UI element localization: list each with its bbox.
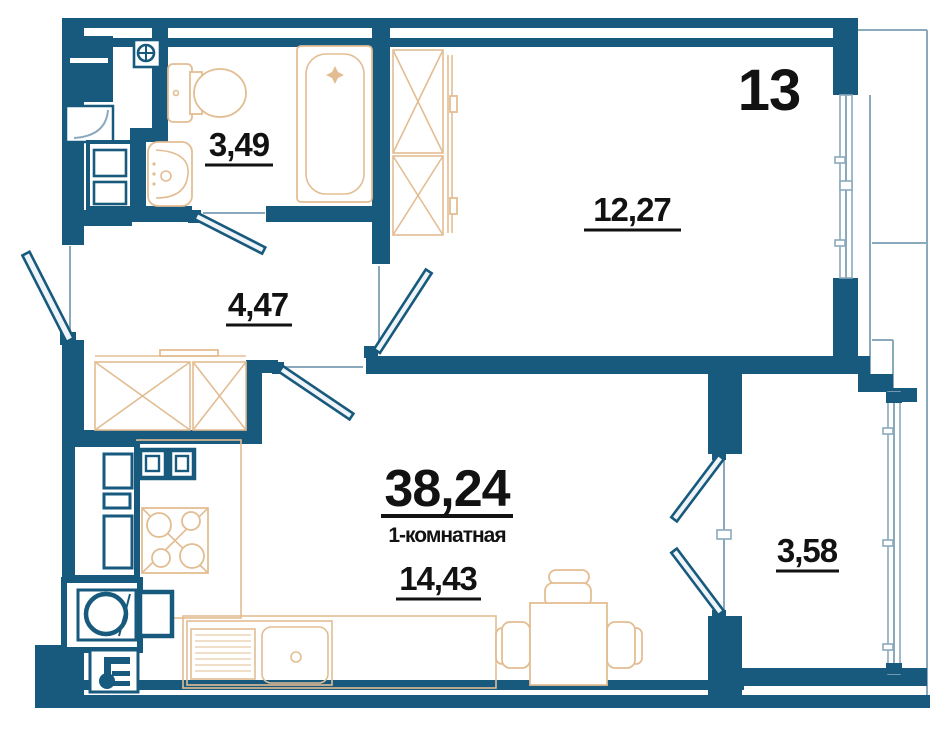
vent-symbol bbox=[134, 40, 160, 67]
bedroom-area-label: 12,27 bbox=[593, 191, 671, 228]
balcony-glazing bbox=[883, 392, 902, 674]
bathroom-area-label: 3,49 bbox=[209, 126, 270, 163]
apartment-number: 13 bbox=[738, 58, 801, 123]
hallway-wardrobe bbox=[95, 350, 246, 430]
washbasin bbox=[148, 142, 192, 206]
bathroom-door bbox=[188, 210, 265, 254]
total-area-label: 38,24 bbox=[384, 460, 510, 518]
kitchen-sink bbox=[187, 621, 332, 685]
hallway-area-label: 4,47 bbox=[228, 286, 288, 323]
bedroom-wardrobe bbox=[393, 50, 457, 235]
balcony-area-label: 3,58 bbox=[777, 532, 838, 569]
bedroom-window bbox=[835, 95, 852, 278]
bedroom-door bbox=[364, 269, 432, 358]
floor-plan: 13 3,49 4,47 12,27 38,24 1-комнатная 14,… bbox=[0, 0, 950, 730]
washing-machine bbox=[64, 580, 172, 650]
apartment-type-label: 1-комнатная bbox=[388, 524, 505, 547]
bathtub bbox=[297, 46, 372, 202]
toilet bbox=[168, 64, 246, 122]
water-valve-icon bbox=[90, 650, 138, 692]
kitchen-living-area-label: 14,43 bbox=[399, 560, 477, 597]
living-room-door bbox=[272, 362, 353, 419]
stove bbox=[142, 508, 208, 573]
dining-table bbox=[496, 570, 642, 685]
entrance-door bbox=[22, 252, 76, 345]
